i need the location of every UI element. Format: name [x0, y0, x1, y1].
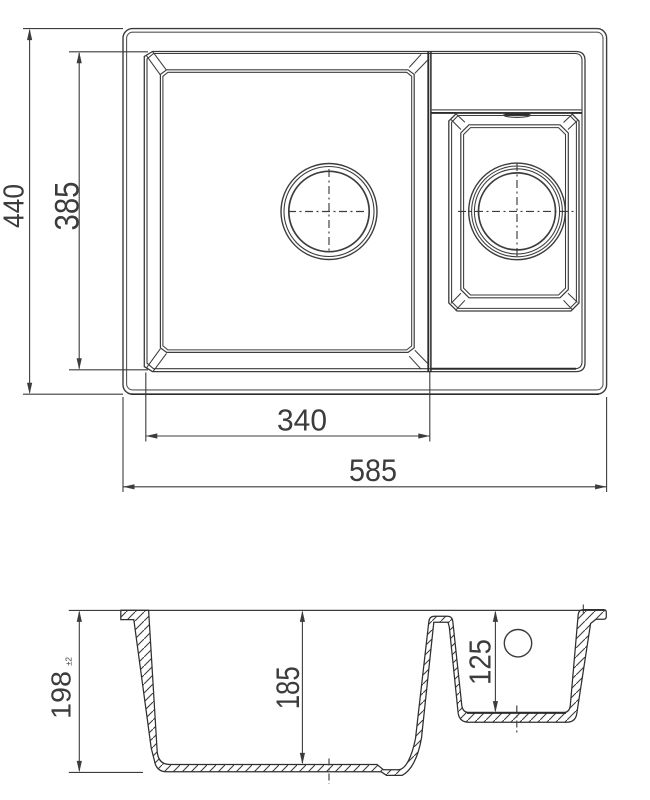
svg-text:185: 185	[270, 666, 306, 709]
svg-text:385: 385	[48, 182, 86, 231]
svg-text:125: 125	[462, 639, 497, 685]
svg-text:198: 198	[45, 671, 76, 719]
svg-text:585: 585	[349, 452, 397, 488]
svg-text:440: 440	[0, 184, 30, 228]
svg-text:±2: ±2	[65, 657, 74, 666]
svg-text:340: 340	[277, 402, 327, 437]
